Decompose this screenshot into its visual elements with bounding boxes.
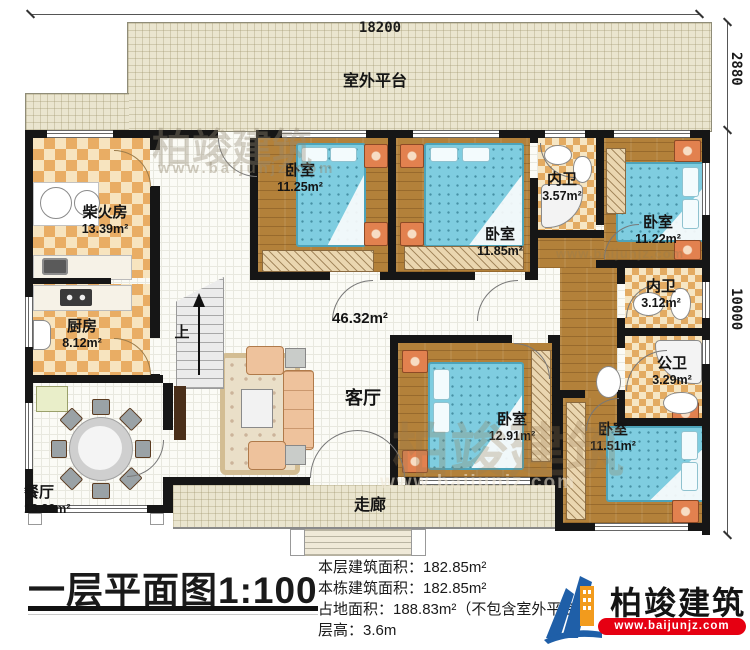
room-label-bedroom-bottom-mid: 卧室 12.91m² <box>467 411 557 444</box>
nightstand <box>364 144 388 168</box>
room-label-dining: 餐厅 13.39m² <box>24 484 114 517</box>
info-line-story-height: 层高：3.6m <box>318 619 396 640</box>
nightstand <box>672 500 699 523</box>
wall <box>596 260 710 268</box>
room-label-bath-top: 内卫 3.57m² <box>517 171 607 204</box>
sideboard <box>36 386 68 412</box>
window <box>545 130 585 138</box>
wall <box>150 130 160 150</box>
wall <box>173 477 310 485</box>
wall <box>390 335 512 343</box>
room-area: 8.12m² <box>37 336 127 351</box>
room-name: 公卫 <box>627 355 717 373</box>
room-name: 厨房 <box>37 318 127 336</box>
wall <box>380 272 475 280</box>
room-area: 12.91m² <box>467 429 557 444</box>
room-name: 卧室 <box>613 214 703 232</box>
room-label-platform: 室外平台 <box>330 72 420 91</box>
room-area: 13.39m² <box>24 502 114 517</box>
dimension-line-house <box>727 130 728 535</box>
stairs-up-label: 上 <box>160 324 204 342</box>
step-post <box>290 529 305 556</box>
pillow <box>681 462 698 491</box>
title-underline <box>28 606 318 611</box>
platform-label: 室外平台 <box>330 72 420 91</box>
logo-site-text: www.baijunjz.com <box>598 618 746 635</box>
nightstand <box>402 350 428 373</box>
room-name: 走廊 <box>325 496 415 515</box>
corridor-edge <box>173 527 555 529</box>
window <box>614 130 690 138</box>
sofa <box>283 370 314 450</box>
window <box>413 130 499 138</box>
step-post <box>411 529 426 556</box>
room-name: 柴火房 <box>60 204 150 222</box>
coffee-table <box>241 389 273 428</box>
room-label-bedroom-bottom-right: 卧室 11.51m² <box>568 421 658 454</box>
entrance-steps <box>302 529 414 556</box>
counter-sink <box>42 258 68 275</box>
room-area: 11.25m² <box>255 180 345 195</box>
nightstand <box>402 450 428 473</box>
dimension-line-top <box>30 14 700 15</box>
pillow <box>462 147 490 162</box>
pillow <box>681 431 698 460</box>
wall <box>617 336 625 348</box>
wall <box>250 272 330 280</box>
room-area: 46.32m² <box>310 310 410 328</box>
pillow <box>430 147 458 162</box>
wall <box>618 390 625 398</box>
room-label-firewood: 柴火房 13.39m² <box>60 204 150 237</box>
wall <box>530 138 538 143</box>
room-label-bedroom-top-left: 卧室 11.25m² <box>255 162 345 195</box>
room-label-bath-mid: 内卫 3.12m² <box>616 278 706 311</box>
room-area: 3.29m² <box>627 373 717 388</box>
pillow <box>682 167 699 197</box>
wardrobe <box>606 148 626 214</box>
room-name: 卧室 <box>568 421 658 439</box>
window <box>282 130 366 138</box>
armchair <box>248 441 286 470</box>
room-label-bath-public: 公卫 3.29m² <box>627 355 717 388</box>
dimension-platform-depth: 2880 <box>728 52 744 86</box>
room-label-corridor: 走廊 <box>325 496 415 515</box>
wall <box>150 186 160 338</box>
toilet <box>663 392 698 414</box>
room-name: 卧室 <box>255 162 345 180</box>
side-table <box>285 348 306 368</box>
wall <box>163 477 173 513</box>
info-line-building-area: 本栋建筑面积：182.85m² <box>318 577 486 598</box>
window <box>702 163 710 215</box>
dining-chair <box>51 440 67 458</box>
pillow <box>433 402 450 433</box>
room-name: 内卫 <box>517 171 607 189</box>
pillow <box>330 147 357 162</box>
info-line-floor-area: 本层建筑面积：182.85m² <box>318 556 486 577</box>
room-label-living: 客厅 <box>318 388 408 410</box>
dining-table-top <box>78 426 122 470</box>
hall-wood-floor <box>538 238 604 268</box>
window <box>25 403 33 469</box>
nightstand <box>400 222 424 246</box>
title-underline-light <box>28 614 318 615</box>
wall <box>163 383 173 430</box>
room-area: 13.39m² <box>60 222 150 237</box>
pillow <box>433 369 450 400</box>
wall <box>25 375 163 383</box>
room-label-bedroom-top-right: 卧室 11.22m² <box>613 214 703 247</box>
dimension-total-width: 18200 <box>340 20 420 36</box>
room-name: 客厅 <box>318 388 408 410</box>
room-area: 11.51m² <box>568 439 658 454</box>
room-name: 卧室 <box>467 411 557 429</box>
wardrobe <box>262 250 374 272</box>
outdoor-platform-extension <box>25 93 129 132</box>
window <box>25 297 33 347</box>
dimension-house-depth: 10000 <box>728 288 744 330</box>
pillow <box>301 147 328 162</box>
nightstand <box>674 140 701 162</box>
wall <box>388 138 396 272</box>
step-post <box>150 513 164 525</box>
room-name: 内卫 <box>616 278 706 296</box>
logo-building-icon <box>540 568 608 644</box>
window <box>420 477 530 485</box>
window <box>595 523 688 531</box>
side-table <box>285 445 306 465</box>
wall <box>525 272 538 280</box>
floor-plan-canvas: 18200 2880 10000 室外平台 <box>0 0 750 650</box>
window <box>47 130 113 138</box>
room-area: 3.57m² <box>517 189 607 204</box>
room-label-bedroom-top-mid: 卧室 11.85m² <box>455 226 545 259</box>
room-label-kitchen: 厨房 8.12m² <box>37 318 127 351</box>
room-name: 餐厅 <box>24 484 114 502</box>
armchair <box>246 346 284 375</box>
wall <box>538 230 604 238</box>
wall <box>617 328 710 336</box>
room-area: 3.12m² <box>616 296 706 311</box>
wardrobe <box>566 402 586 520</box>
nightstand <box>400 144 424 168</box>
dining-chair <box>92 399 110 415</box>
room-name: 卧室 <box>455 226 545 244</box>
room-area: 11.85m² <box>455 244 545 259</box>
room-area: 11.22m² <box>613 232 703 247</box>
tv-cabinet <box>174 386 186 440</box>
wall <box>33 278 111 284</box>
stairs-label: 上 <box>160 324 204 342</box>
nightstand <box>364 222 388 246</box>
gas-stove <box>60 289 92 306</box>
wall <box>617 318 625 328</box>
living-area-label: 46.32m² <box>310 310 410 328</box>
